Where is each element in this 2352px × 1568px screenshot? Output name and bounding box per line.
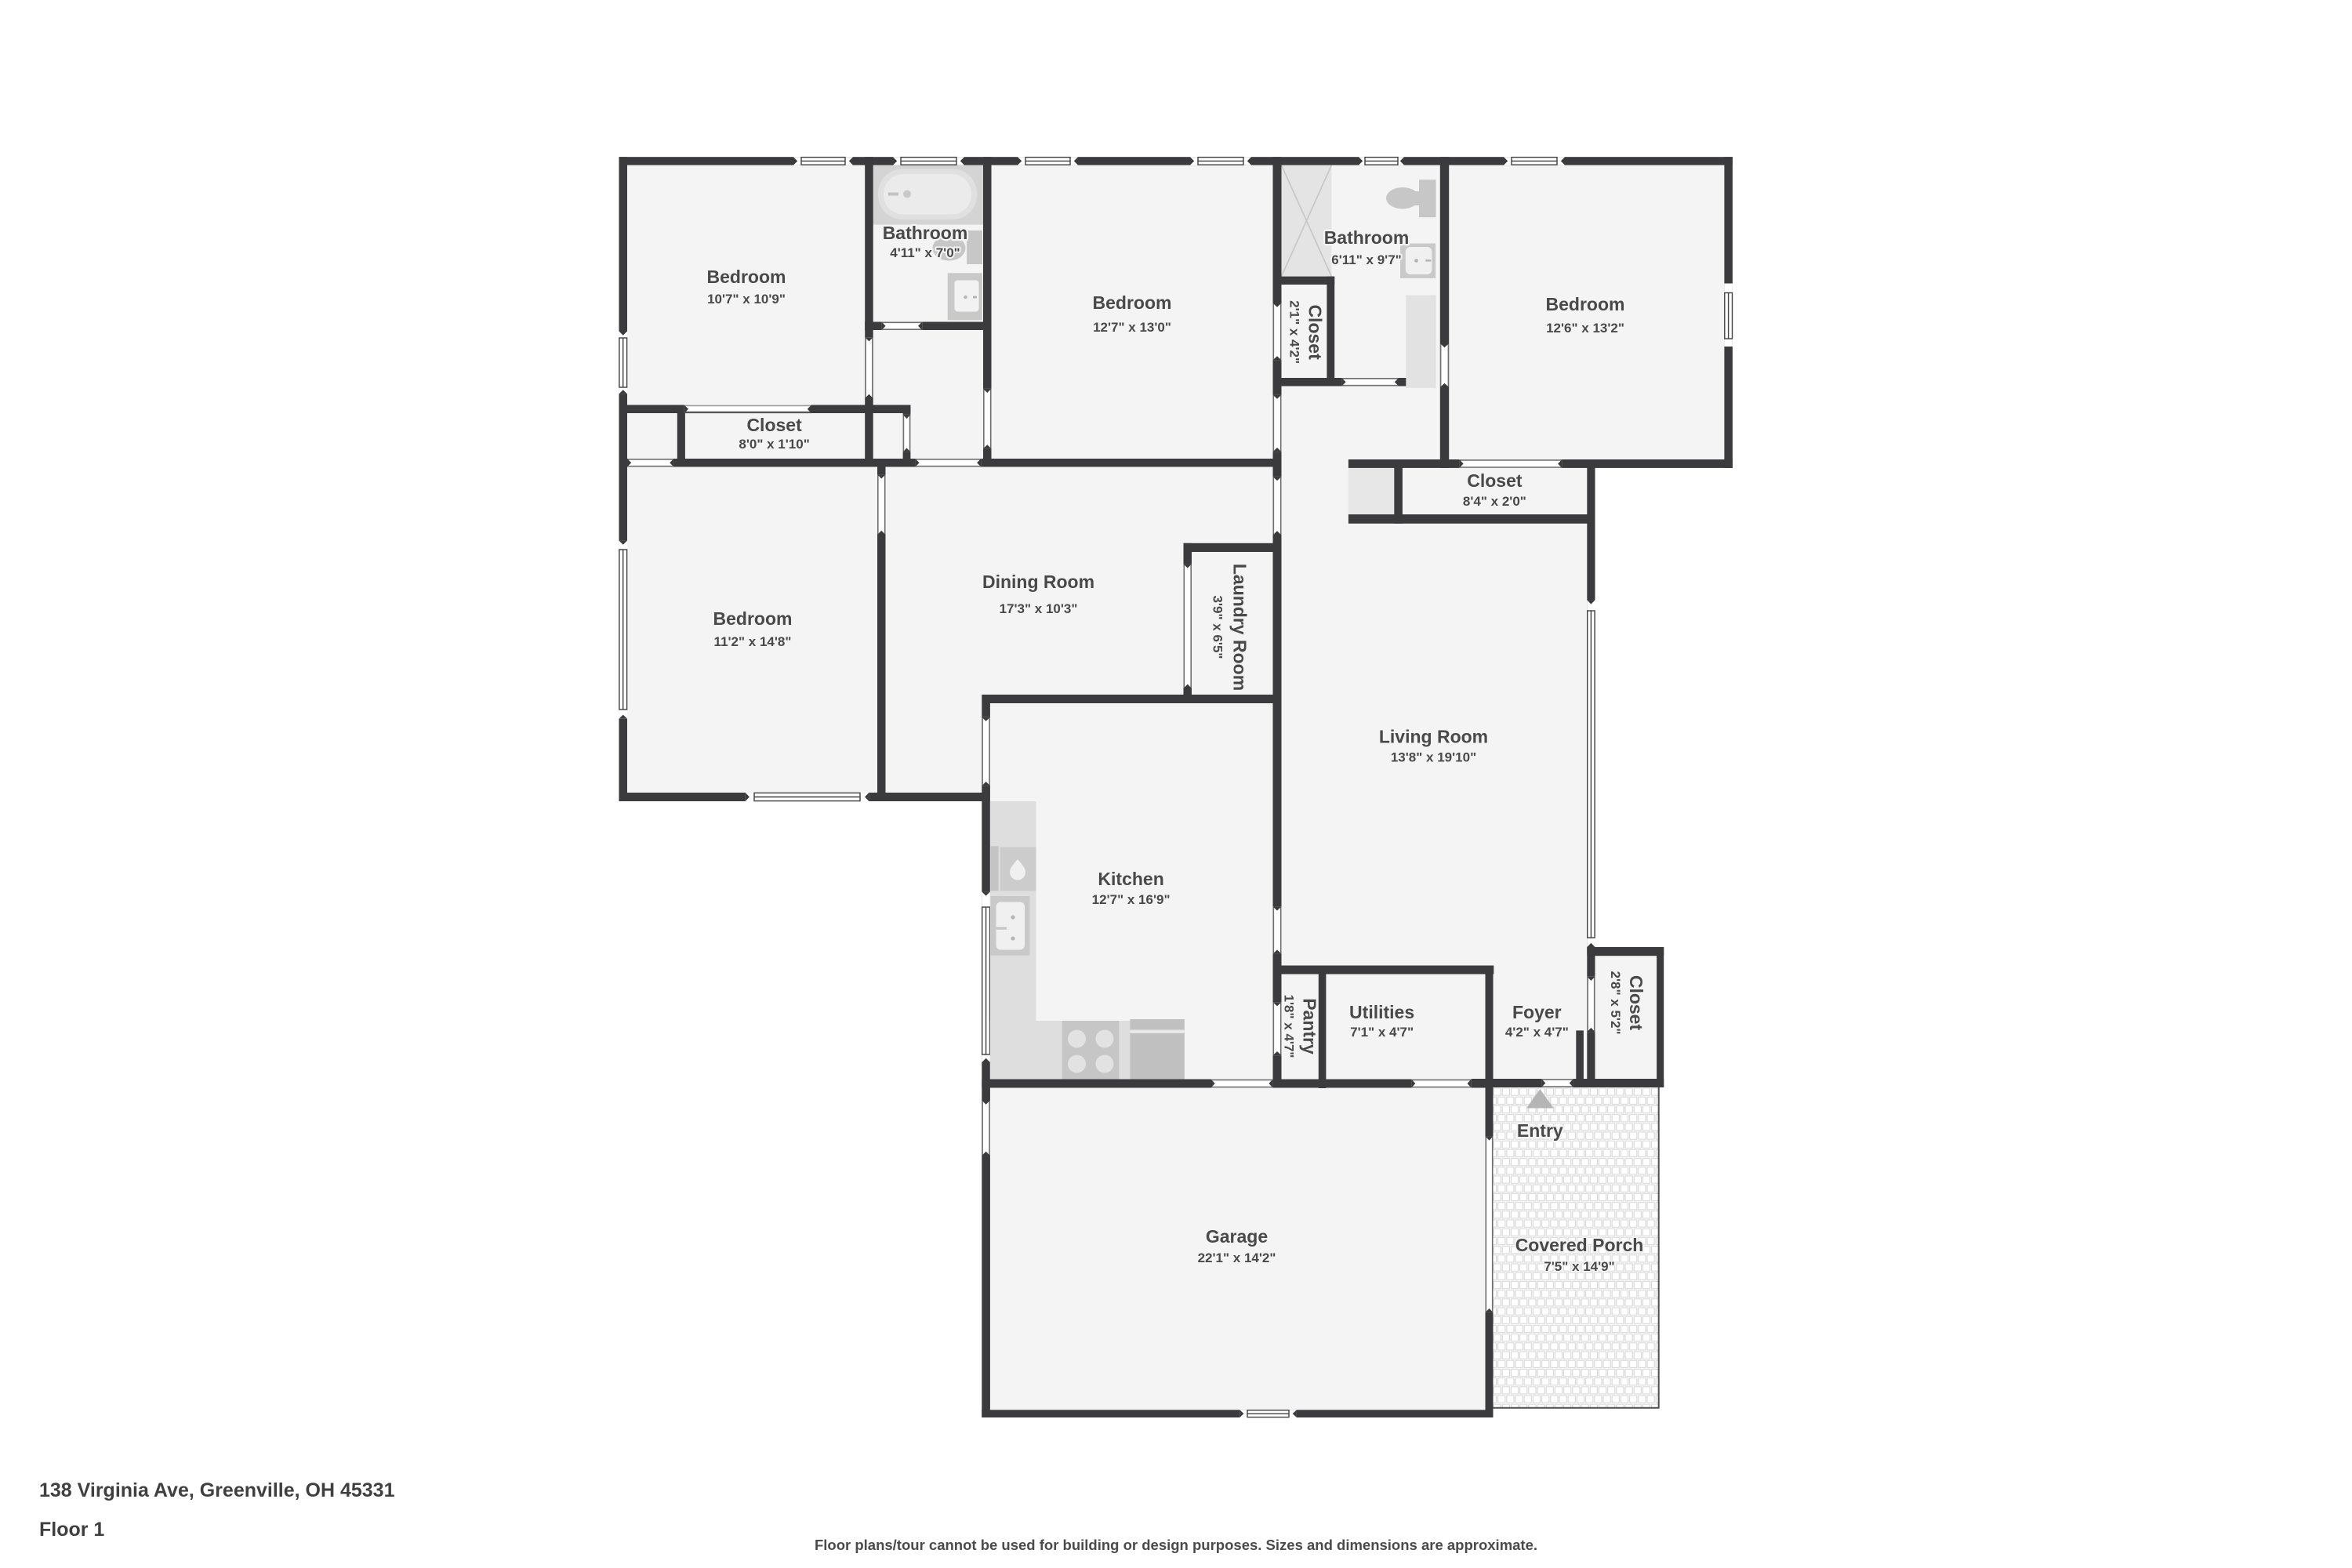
svg-text:Pantry: Pantry <box>1300 998 1320 1054</box>
svg-text:3'9" x 6'5": 3'9" x 6'5" <box>1210 596 1225 659</box>
svg-text:2'8" x 5'2": 2'8" x 5'2" <box>1608 971 1623 1035</box>
svg-text:10'7" x 10'9": 10'7" x 10'9" <box>707 292 786 307</box>
svg-text:Garage: Garage <box>1206 1226 1268 1247</box>
svg-text:12'7" x 13'0": 12'7" x 13'0" <box>1093 320 1171 335</box>
svg-text:8'0" x 1'10": 8'0" x 1'10" <box>739 437 809 452</box>
svg-text:Dining Room: Dining Room <box>982 572 1094 592</box>
svg-text:Entry: Entry <box>1517 1120 1563 1141</box>
svg-text:1'8" x 4'7": 1'8" x 4'7" <box>1282 995 1297 1058</box>
svg-text:17'3" x 10'3": 17'3" x 10'3" <box>1000 601 1078 616</box>
svg-text:11'2" x 14'8": 11'2" x 14'8" <box>714 634 792 649</box>
svg-text:Laundry Room: Laundry Room <box>1230 564 1250 691</box>
svg-text:138 Virginia Ave, Greenville,: 138 Virginia Ave, Greenville, OH 45331 <box>39 1479 395 1501</box>
svg-text:Closet: Closet <box>1626 975 1646 1031</box>
svg-text:Closet: Closet <box>1467 470 1523 491</box>
svg-text:12'7" x 16'9": 12'7" x 16'9" <box>1092 892 1171 907</box>
svg-text:Bedroom: Bedroom <box>707 267 786 287</box>
svg-text:Floor plans/tour cannot be use: Floor plans/tour cannot be used for buil… <box>815 1537 1537 1553</box>
svg-text:7'1" x 4'7": 7'1" x 4'7" <box>1350 1025 1414 1040</box>
svg-text:8'4" x 2'0": 8'4" x 2'0" <box>1463 494 1526 509</box>
svg-text:4'11" x 7'0": 4'11" x 7'0" <box>890 245 960 260</box>
svg-text:Foyer: Foyer <box>1512 1002 1562 1022</box>
svg-text:Utilities: Utilities <box>1349 1002 1414 1022</box>
svg-text:Bedroom: Bedroom <box>1093 292 1172 313</box>
svg-text:Closet: Closet <box>1305 304 1326 360</box>
svg-text:4'2" x 4'7": 4'2" x 4'7" <box>1505 1025 1569 1040</box>
svg-text:Covered Porch: Covered Porch <box>1515 1235 1644 1255</box>
svg-text:Bedroom: Bedroom <box>713 608 793 629</box>
svg-text:22'1" x 14'2": 22'1" x 14'2" <box>1198 1250 1276 1265</box>
svg-text:Bedroom: Bedroom <box>1546 294 1625 314</box>
svg-text:12'6" x 13'2": 12'6" x 13'2" <box>1546 321 1624 336</box>
svg-text:Floor 1: Floor 1 <box>39 1519 104 1541</box>
svg-text:Bathroom: Bathroom <box>1324 227 1410 248</box>
svg-text:Closet: Closet <box>746 415 802 435</box>
svg-text:Living Room: Living Room <box>1379 727 1488 747</box>
svg-text:13'8" x 19'10": 13'8" x 19'10" <box>1391 750 1476 765</box>
svg-text:Bathroom: Bathroom <box>883 223 968 243</box>
svg-text:7'5" x 14'9": 7'5" x 14'9" <box>1544 1259 1614 1274</box>
svg-text:2'1" x 4'2": 2'1" x 4'2" <box>1287 300 1302 364</box>
svg-text:6'11" x 9'7": 6'11" x 9'7" <box>1331 252 1401 267</box>
svg-text:Kitchen: Kitchen <box>1098 869 1163 889</box>
